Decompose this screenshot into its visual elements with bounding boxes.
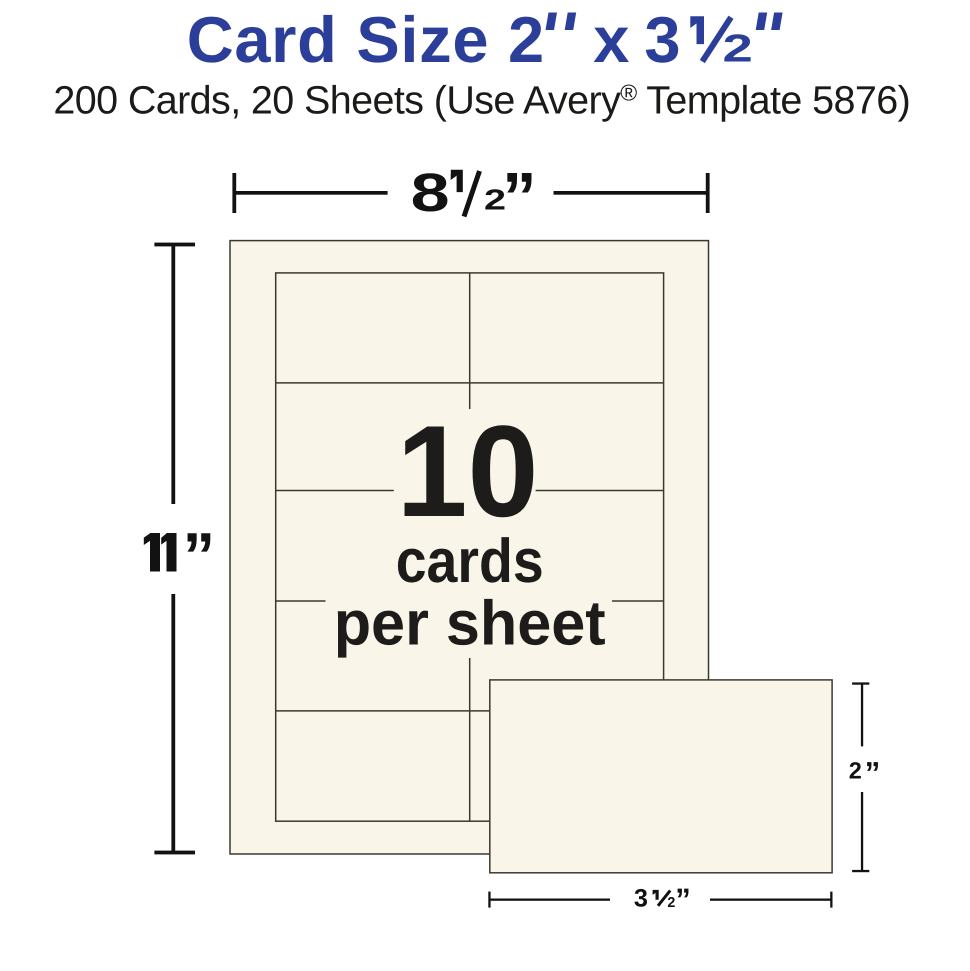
svg-text:8: 8: [411, 163, 450, 223]
svg-text:”: ”: [183, 519, 216, 592]
svg-text:x 3: x 3: [593, 3, 679, 76]
svg-text:”: ”: [502, 158, 536, 235]
svg-text:10: 10: [397, 398, 539, 544]
svg-text:”: ”: [675, 882, 691, 917]
svg-text:”: ”: [865, 756, 881, 791]
svg-text:cards: cards: [396, 527, 544, 596]
svg-text:200 Cards, 20 Sheets (Use Aver: 200 Cards, 20 Sheets (Use Avery® Templat…: [53, 79, 910, 123]
svg-text:2: 2: [849, 758, 862, 784]
svg-text:per sheet: per sheet: [334, 589, 606, 659]
svg-text:2: 2: [667, 895, 675, 911]
svg-text:Card Size 2: Card Size 2: [187, 3, 545, 76]
svg-text:3: 3: [634, 885, 648, 913]
svg-text:2: 2: [723, 27, 753, 70]
